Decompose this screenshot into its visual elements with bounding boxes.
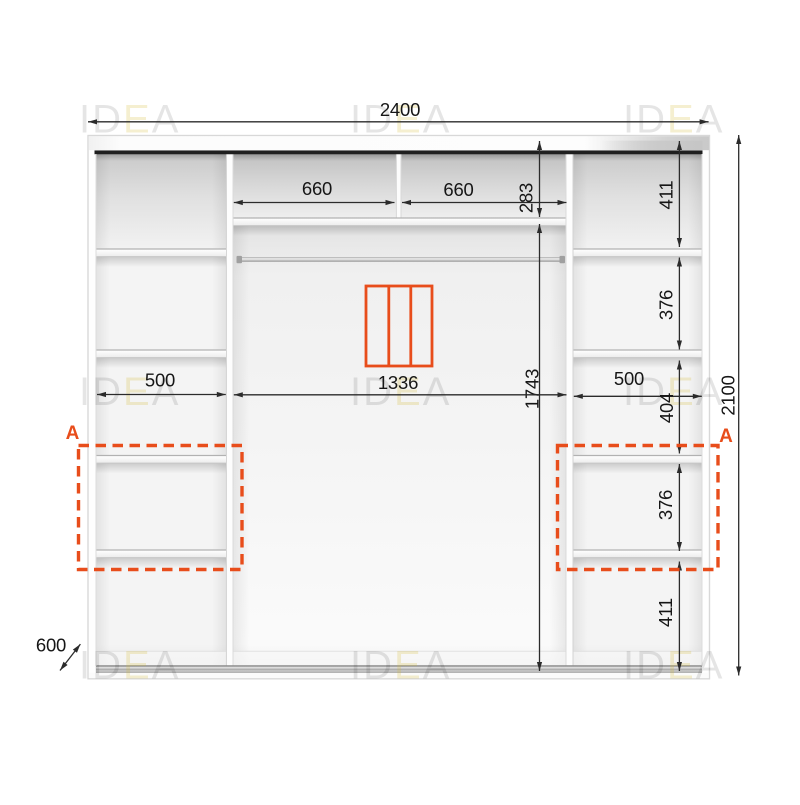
svg-text:411: 411: [656, 181, 677, 210]
svg-text:2400: 2400: [380, 99, 420, 120]
svg-text:500: 500: [614, 368, 644, 389]
svg-text:376: 376: [655, 490, 676, 520]
svg-text:2100: 2100: [717, 375, 738, 415]
svg-text:IDEA: IDEA: [623, 98, 724, 142]
svg-text:IDEA: IDEA: [79, 98, 180, 142]
svg-text:660: 660: [443, 179, 473, 200]
svg-text:283: 283: [516, 183, 537, 213]
svg-text:IDEA: IDEA: [350, 644, 451, 688]
svg-text:500: 500: [145, 370, 175, 391]
svg-text:660: 660: [302, 178, 332, 199]
svg-text:IDEA: IDEA: [79, 644, 180, 688]
svg-text:A: A: [719, 426, 733, 447]
svg-text:404: 404: [656, 393, 677, 423]
svg-text:IDEA: IDEA: [623, 644, 724, 688]
svg-text:411: 411: [655, 598, 676, 627]
svg-text:1336: 1336: [378, 372, 418, 393]
svg-text:A: A: [66, 423, 80, 444]
svg-text:376: 376: [656, 290, 677, 320]
svg-text:600: 600: [36, 635, 66, 656]
svg-text:1743: 1743: [521, 369, 542, 409]
